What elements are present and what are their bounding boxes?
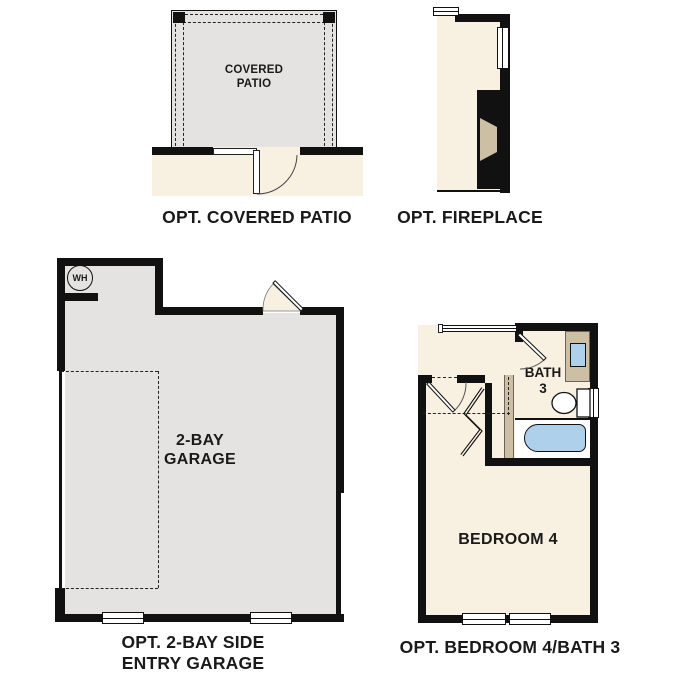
bath-side-window bbox=[588, 388, 599, 418]
bath-bottom-wall bbox=[485, 458, 598, 466]
bedroom-room-label: BEDROOM 4 bbox=[418, 531, 598, 550]
patio-exterior-wall-right bbox=[300, 147, 363, 155]
garage-caption-line1: OPT. 2-BAY SIDE bbox=[121, 632, 264, 652]
bath-room-label-line2: 3 bbox=[539, 381, 547, 396]
garage-top-wall-alcove bbox=[57, 258, 163, 266]
garage-bay-dashed-top bbox=[61, 371, 158, 372]
tub-deck-edge bbox=[515, 418, 590, 420]
garage-left-wall-upper bbox=[57, 258, 65, 371]
patio-post-right bbox=[323, 12, 335, 23]
patio-room-label-line2: PATIO bbox=[237, 78, 271, 90]
patio-room-label-line1: COVERED bbox=[225, 64, 283, 76]
garage-top-wall-left bbox=[155, 307, 263, 315]
closet-right-wall bbox=[485, 383, 492, 466]
fireplace-caption: OPT. FIREPLACE bbox=[370, 207, 570, 228]
garage-room-label-line1: 2-BAY bbox=[176, 432, 224, 449]
closet-shelf-dashed bbox=[423, 413, 510, 414]
plumbing-wall-dashed bbox=[508, 377, 509, 415]
garage-window-right bbox=[250, 612, 292, 624]
patio-door-threshold bbox=[213, 148, 257, 155]
fireplace-chase bbox=[477, 90, 502, 189]
bath-room-label: BATH 3 bbox=[517, 365, 569, 397]
garage-window-left bbox=[102, 612, 144, 624]
water-heater-closet-wall bbox=[63, 293, 98, 301]
patio-door-leaf bbox=[253, 150, 260, 194]
patio-caption: OPT. COVERED PATIO bbox=[127, 207, 387, 228]
garage-caption: OPT. 2-BAY SIDE ENTRY GARAGE bbox=[63, 632, 323, 673]
water-heater-label: WH bbox=[73, 273, 88, 283]
garage-caption-line2: ENTRY GARAGE bbox=[122, 653, 264, 673]
hall-opening-end-tick bbox=[438, 324, 443, 333]
water-heater-circle: WH bbox=[67, 265, 93, 291]
garage-entry-door-leaf bbox=[273, 281, 303, 311]
floorplan-sheet: COVERED PATIO OPT. COVERED PATIO OPT. FI… bbox=[0, 0, 687, 687]
bathtub bbox=[524, 424, 586, 452]
closet-top-wall-right bbox=[457, 375, 485, 383]
fireplace-floor-line bbox=[437, 190, 507, 192]
closet-opening-dashed bbox=[432, 377, 457, 378]
bedroom-bottom-wall bbox=[418, 615, 598, 623]
garage-bay-dashed-bottom bbox=[61, 588, 158, 589]
fireplace-top-window bbox=[433, 7, 459, 16]
bath-room-label-line1: BATH bbox=[525, 365, 562, 380]
patio-exterior-wall-left bbox=[152, 147, 213, 155]
bedroom-right-wall bbox=[590, 323, 598, 623]
garage-side-entry-door bbox=[59, 371, 62, 588]
bedroom-window-right bbox=[509, 613, 551, 625]
hall-opening-window bbox=[441, 325, 517, 332]
bedroom-window-left bbox=[462, 613, 506, 625]
garage-entry-door-swing bbox=[263, 284, 301, 311]
bath-top-wall bbox=[515, 323, 598, 331]
plumbing-wall bbox=[504, 375, 514, 458]
garage-bay-dashed-right bbox=[158, 371, 159, 588]
garage-bottom-wall bbox=[55, 614, 344, 622]
garage-right-wall-upper bbox=[336, 307, 344, 493]
fireplace-side-window bbox=[497, 27, 509, 69]
bedroom-bath-caption: OPT. BEDROOM 4/BATH 3 bbox=[385, 637, 635, 658]
patio-room-label: COVERED PATIO bbox=[171, 64, 337, 91]
garage-right-wall-lower bbox=[336, 493, 341, 622]
garage-room-label: 2-BAY GARAGE bbox=[120, 432, 280, 470]
patio-post-left bbox=[173, 12, 185, 23]
vanity-sink bbox=[570, 343, 586, 367]
garage-room-label-line2: GARAGE bbox=[164, 451, 236, 468]
